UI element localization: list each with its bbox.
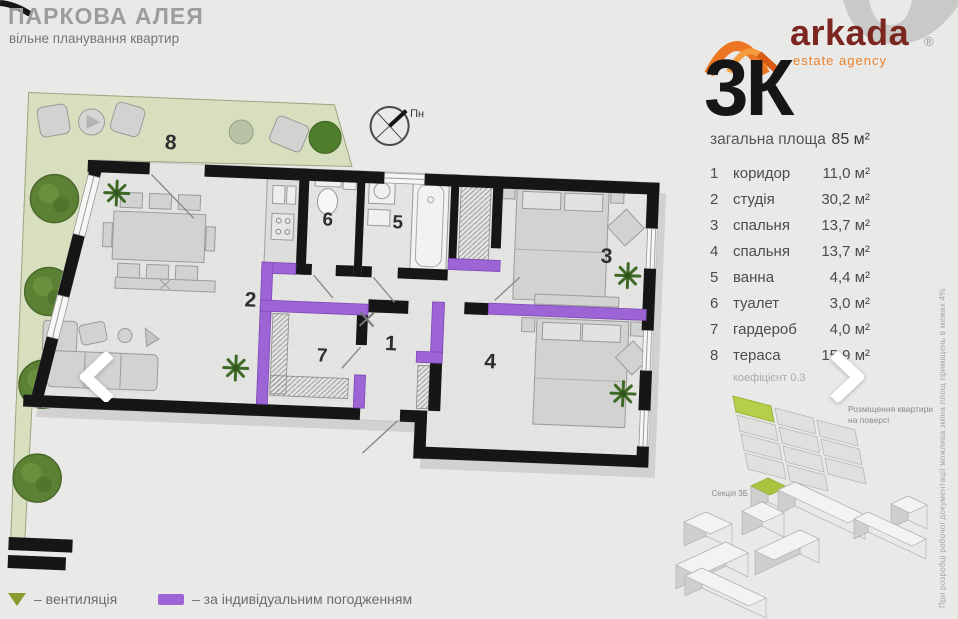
chevron-left-icon [80, 352, 114, 402]
floor-plan: 8 [0, 80, 700, 619]
plant [223, 356, 248, 381]
plant [615, 263, 640, 288]
section-caption: Секція 3Б [712, 489, 748, 498]
room-row: 5ванна4,4 м² [710, 269, 870, 295]
plant [611, 381, 636, 406]
room-label-4: 4 [484, 350, 497, 373]
room-row: 1коридор11,0 м² [710, 165, 870, 191]
purple-swatch-icon [158, 594, 184, 605]
building-3d-illustration [676, 478, 927, 618]
flyer-page: { "header": {"title": "ПАРКОВА АЛЕЯ", "s… [0, 0, 958, 619]
room-label-3: 3 [600, 245, 613, 268]
ventilation-triangle-icon [8, 593, 26, 606]
room-label-7: 7 [317, 345, 328, 366]
room-list: 1коридор11,0 м² 2студія30,2 м² 3спальня1… [710, 165, 870, 373]
page-title: ПАРКОВА АЛЕЯ [8, 3, 204, 30]
total-area-label: загальна площа [710, 131, 826, 149]
room-label-1: 1 [385, 332, 398, 355]
room-label-6: 6 [322, 209, 333, 230]
compass-north-label: Пн [410, 108, 424, 121]
bed [518, 317, 644, 428]
room-row: 2студія30,2 м² [710, 191, 870, 217]
sink [368, 209, 391, 226]
bathtub [410, 179, 450, 272]
legend-ventilation: – вентиляція [8, 591, 117, 607]
closet [416, 365, 430, 408]
room-row: 6туалет3,0 м² [710, 295, 870, 321]
logo-brand: arkada [790, 12, 909, 54]
ventilation-label: – вентиляція [34, 591, 117, 607]
total-area-row: загальна площа 85 м² [710, 131, 870, 149]
apartment-type: 3К [704, 48, 791, 128]
next-arrow[interactable] [830, 352, 864, 405]
compass-icon: Пн [370, 106, 424, 146]
page-subtitle: вільне планування квартир [9, 31, 179, 46]
room-row: 7гардероб4,0 м² [710, 321, 870, 347]
total-area-value: 85 м² [831, 131, 870, 149]
disclaimer-text: При розробці робочої документації можлив… [938, 143, 947, 608]
registered-mark: ® [924, 34, 934, 49]
individual-label: – за індивідуальним погодженням [192, 591, 412, 607]
position-caption: Розміщення квартири на поверсі [848, 404, 940, 426]
closet [458, 181, 491, 260]
logo-tagline: estate agency [793, 53, 887, 68]
closet [270, 375, 349, 398]
floor-position-diagram [733, 396, 866, 491]
room-row: 4спальня13,7 м² [710, 243, 870, 269]
room-label-5: 5 [392, 212, 404, 233]
room-label-2: 2 [244, 288, 257, 311]
chevron-right-icon [830, 352, 864, 402]
room-row: 3спальня13,7 м² [710, 217, 870, 243]
room-label-8: 8 [164, 131, 177, 154]
kitchen [264, 173, 302, 264]
legend-individual: – за індивідуальним погодженням [158, 591, 412, 607]
prev-arrow[interactable] [80, 352, 114, 405]
plant [104, 181, 129, 206]
